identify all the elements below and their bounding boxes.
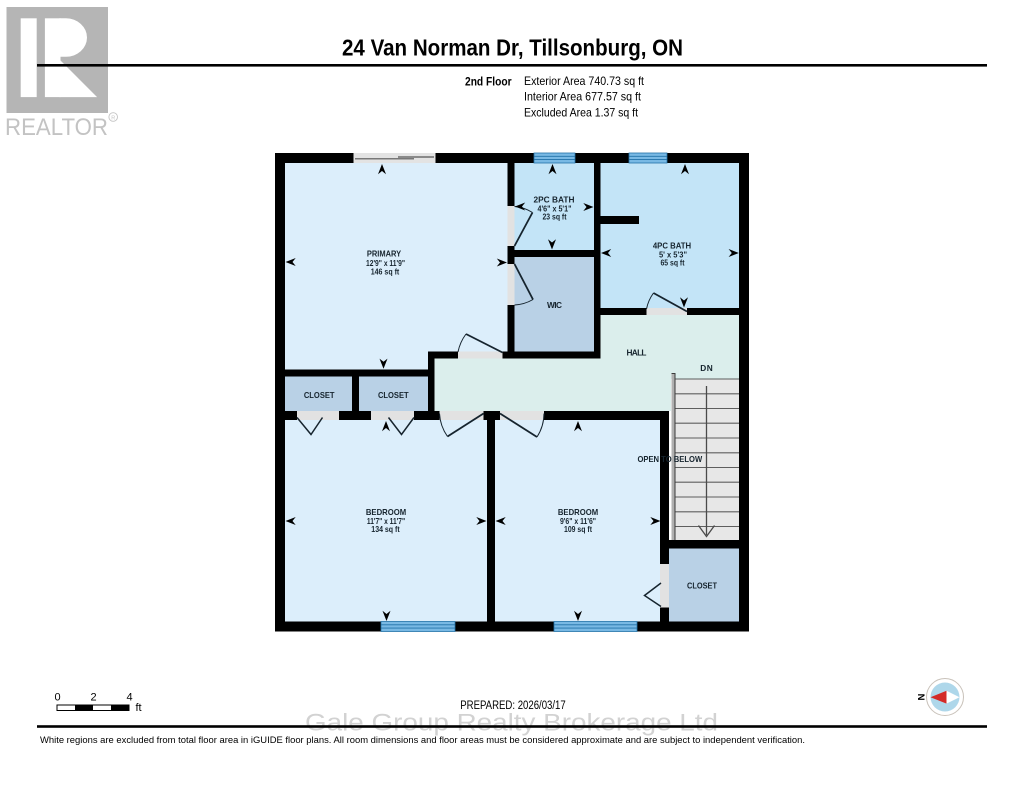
- svg-text:White regions are excluded fro: White regions are excluded from total fl…: [40, 735, 805, 745]
- svg-text:CLOSET: CLOSET: [378, 390, 409, 400]
- svg-text:WIC: WIC: [547, 300, 562, 310]
- svg-text:OPEN TO BELOW: OPEN TO BELOW: [637, 454, 702, 464]
- svg-text:CLOSET: CLOSET: [304, 390, 335, 400]
- svg-text:Excluded Area 1.37 sq ft: Excluded Area 1.37 sq ft: [524, 105, 639, 119]
- svg-text:Gale Group Realty Brokerage Lt: Gale Group Realty Brokerage Ltd: [305, 710, 718, 737]
- svg-text:DN: DN: [700, 363, 713, 373]
- svg-text:BEDROOM: BEDROOM: [558, 507, 598, 517]
- svg-text:PREPARED: 2026/03/17: PREPARED: 2026/03/17: [460, 700, 566, 712]
- svg-text:109 sq ft: 109 sq ft: [564, 525, 592, 534]
- svg-text:Interior Area 677.57 sq ft: Interior Area 677.57 sq ft: [524, 90, 642, 104]
- svg-text:0: 0: [54, 692, 60, 704]
- svg-text:65 sq ft: 65 sq ft: [661, 259, 685, 268]
- svg-text:ft: ft: [136, 702, 142, 714]
- svg-text:146 sq ft: 146 sq ft: [371, 267, 400, 276]
- svg-text:Exterior Area 740.73 sq ft: Exterior Area 740.73 sq ft: [524, 74, 645, 88]
- svg-text:4PC BATH: 4PC BATH: [653, 241, 691, 251]
- svg-text:CLOSET: CLOSET: [687, 581, 717, 591]
- svg-text:4: 4: [126, 692, 132, 704]
- svg-text:2PC BATH: 2PC BATH: [534, 195, 575, 205]
- svg-text:REALTOR: REALTOR: [5, 114, 108, 141]
- svg-text:2: 2: [90, 692, 96, 704]
- svg-text:BEDROOM: BEDROOM: [366, 507, 406, 517]
- svg-text:HALL: HALL: [627, 347, 647, 357]
- svg-text:24 Van Norman Dr, Tillsonburg,: 24 Van Norman Dr, Tillsonburg, ON: [342, 34, 683, 60]
- svg-text:23 sq ft: 23 sq ft: [543, 212, 567, 221]
- svg-text:PRIMARY: PRIMARY: [367, 249, 402, 259]
- svg-text:R: R: [111, 115, 115, 121]
- svg-text:N: N: [917, 693, 928, 700]
- svg-text:2nd Floor: 2nd Floor: [465, 75, 512, 89]
- svg-text:134 sq ft: 134 sq ft: [371, 525, 400, 534]
